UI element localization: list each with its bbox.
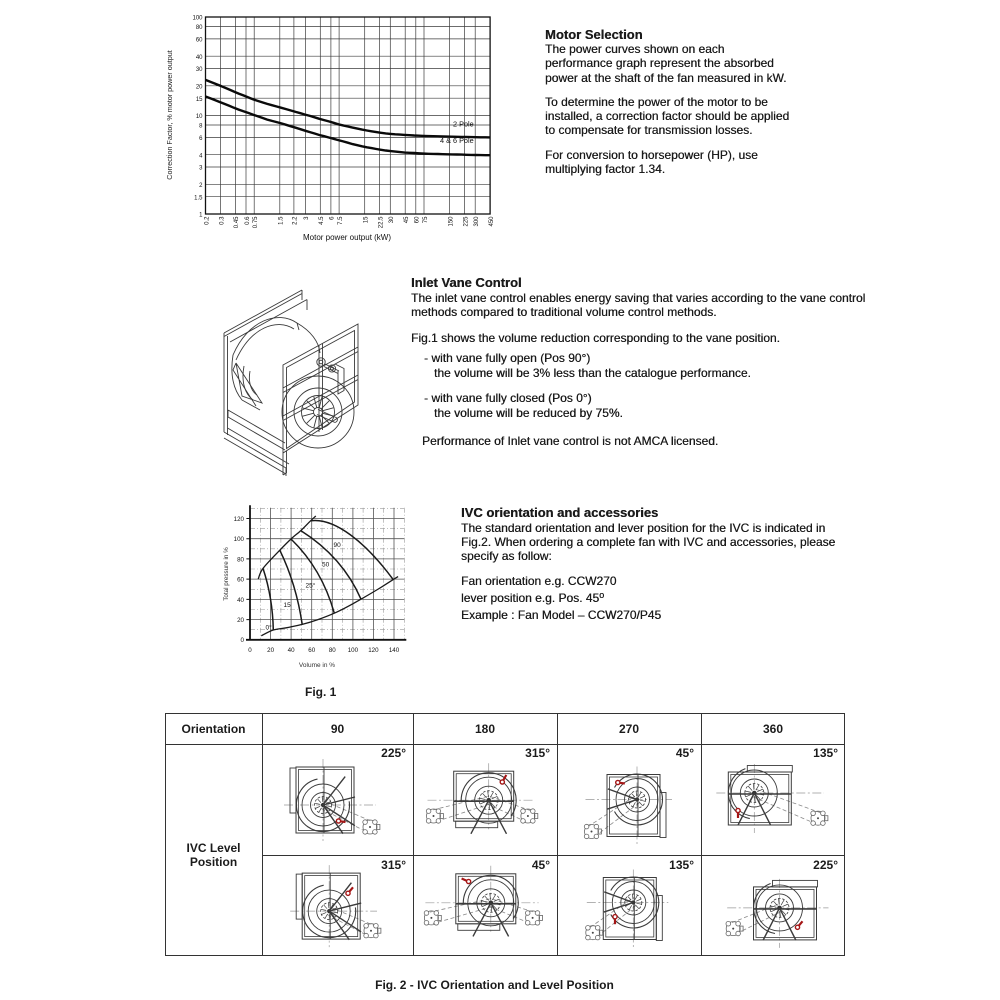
svg-text:15: 15	[196, 97, 203, 103]
svg-text:40: 40	[237, 597, 244, 604]
svg-text:4 & 6 Pole: 4 & 6 Pole	[440, 136, 474, 145]
svg-text:3: 3	[304, 216, 310, 220]
svg-text:0.3: 0.3	[219, 216, 225, 225]
svg-text:Motor power output (kW): Motor power output (kW)	[303, 233, 391, 242]
svg-text:150: 150	[448, 216, 454, 227]
svg-text:90: 90	[334, 542, 342, 549]
svg-text:30: 30	[389, 216, 395, 223]
svg-text:0: 0	[241, 637, 245, 644]
svg-text:120: 120	[234, 516, 245, 523]
svg-text:0.45: 0.45	[234, 216, 240, 228]
svg-text:0°: 0°	[266, 624, 273, 632]
svg-text:120: 120	[368, 647, 379, 654]
svg-text:50: 50	[322, 562, 330, 569]
svg-text:6: 6	[330, 216, 336, 220]
svg-text:300: 300	[474, 216, 480, 227]
svg-text:20: 20	[267, 647, 274, 654]
svg-text:2: 2	[199, 183, 203, 189]
svg-text:Correction Factor, % motor pow: Correction Factor, % motor power output	[165, 50, 174, 179]
svg-text:0: 0	[248, 647, 252, 654]
svg-text:4.5: 4.5	[319, 216, 325, 225]
svg-text:Volume in %: Volume in %	[299, 662, 335, 669]
svg-text:40: 40	[196, 55, 203, 61]
svg-text:20: 20	[196, 84, 203, 90]
svg-text:100: 100	[234, 536, 245, 543]
svg-text:80: 80	[196, 25, 203, 31]
svg-text:2 Pole: 2 Pole	[453, 120, 474, 129]
svg-text:100: 100	[348, 647, 359, 654]
svg-text:15: 15	[284, 602, 292, 609]
svg-text:0.6: 0.6	[245, 216, 251, 225]
svg-text:25°: 25°	[306, 582, 316, 590]
svg-text:8: 8	[199, 124, 203, 130]
svg-text:60: 60	[415, 216, 421, 223]
svg-text:20: 20	[237, 617, 244, 624]
svg-text:0.2: 0.2	[204, 216, 210, 225]
svg-text:1.5: 1.5	[279, 216, 285, 225]
svg-text:30: 30	[196, 67, 203, 73]
svg-text:140: 140	[389, 647, 400, 654]
svg-text:1: 1	[199, 213, 203, 219]
svg-text:1.5: 1.5	[194, 195, 203, 201]
svg-text:450: 450	[489, 216, 495, 227]
svg-text:60: 60	[237, 577, 244, 584]
svg-text:15: 15	[364, 216, 370, 223]
svg-text:7.5: 7.5	[338, 216, 344, 225]
svg-text:40: 40	[288, 647, 295, 654]
svg-text:100: 100	[192, 16, 203, 22]
svg-text:60: 60	[308, 647, 315, 654]
svg-text:225: 225	[463, 216, 469, 227]
svg-text:4: 4	[199, 153, 203, 159]
svg-text:Total pressure in %: Total pressure in %	[223, 547, 230, 601]
svg-text:3: 3	[199, 166, 203, 172]
svg-text:22.5: 22.5	[378, 216, 384, 228]
svg-text:10: 10	[196, 114, 203, 120]
svg-text:2.2: 2.2	[293, 216, 299, 225]
svg-text:0.75: 0.75	[253, 216, 259, 228]
svg-text:6: 6	[199, 136, 203, 142]
svg-text:80: 80	[237, 556, 244, 563]
svg-text:75: 75	[423, 216, 429, 223]
svg-text:80: 80	[329, 647, 336, 654]
svg-text:45: 45	[404, 216, 410, 223]
svg-text:60: 60	[196, 38, 203, 44]
